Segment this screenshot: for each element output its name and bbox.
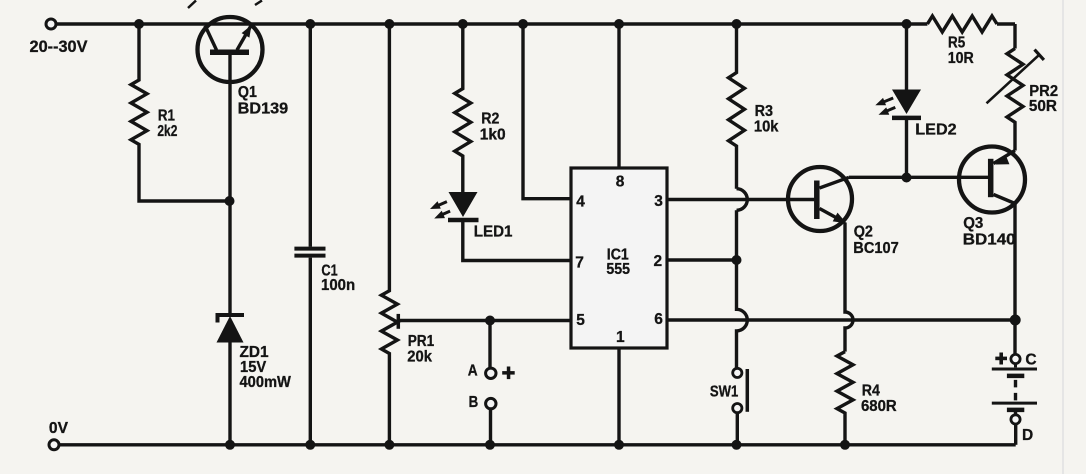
svg-text:8: 8: [616, 173, 625, 190]
svg-text:4: 4: [576, 193, 585, 210]
svg-text:680R: 680R: [861, 398, 897, 415]
svg-text:555: 555: [606, 261, 630, 278]
svg-text:10R: 10R: [948, 50, 974, 67]
svg-text:R3: R3: [755, 103, 774, 120]
svg-text:BD139: BD139: [238, 101, 289, 118]
svg-text:7: 7: [575, 255, 584, 272]
svg-text:3: 3: [654, 193, 663, 210]
svg-text:R4: R4: [862, 383, 880, 400]
svg-text:1: 1: [616, 329, 625, 346]
svg-text:R2: R2: [481, 111, 499, 128]
svg-text:1k0: 1k0: [480, 126, 506, 143]
svg-text:50R: 50R: [1029, 98, 1057, 115]
svg-text:PR1: PR1: [408, 333, 435, 350]
svg-text:10k: 10k: [754, 119, 779, 136]
svg-text:C: C: [1025, 352, 1036, 369]
svg-text:Q3: Q3: [963, 215, 983, 232]
svg-text:SW1: SW1: [710, 384, 739, 401]
svg-text:6: 6: [654, 311, 663, 328]
svg-text:Q2: Q2: [854, 224, 873, 241]
svg-text:5: 5: [576, 312, 585, 329]
svg-text:A: A: [468, 363, 478, 380]
svg-text:20--30V: 20--30V: [30, 37, 89, 56]
svg-text:LED1: LED1: [474, 223, 513, 240]
svg-text:LED2: LED2: [915, 122, 956, 139]
svg-text:0V: 0V: [49, 420, 69, 437]
svg-text:100n: 100n: [321, 277, 355, 294]
svg-text:2k2: 2k2: [157, 123, 177, 140]
svg-text:B: B: [469, 394, 479, 411]
svg-text:Q1: Q1: [238, 84, 257, 101]
svg-text:BD140: BD140: [963, 232, 1016, 249]
svg-text:400mW: 400mW: [240, 374, 292, 391]
svg-text:20k: 20k: [407, 349, 432, 366]
svg-text:2: 2: [654, 253, 663, 270]
svg-text:D: D: [1022, 427, 1033, 444]
svg-text:BC107: BC107: [853, 240, 898, 257]
